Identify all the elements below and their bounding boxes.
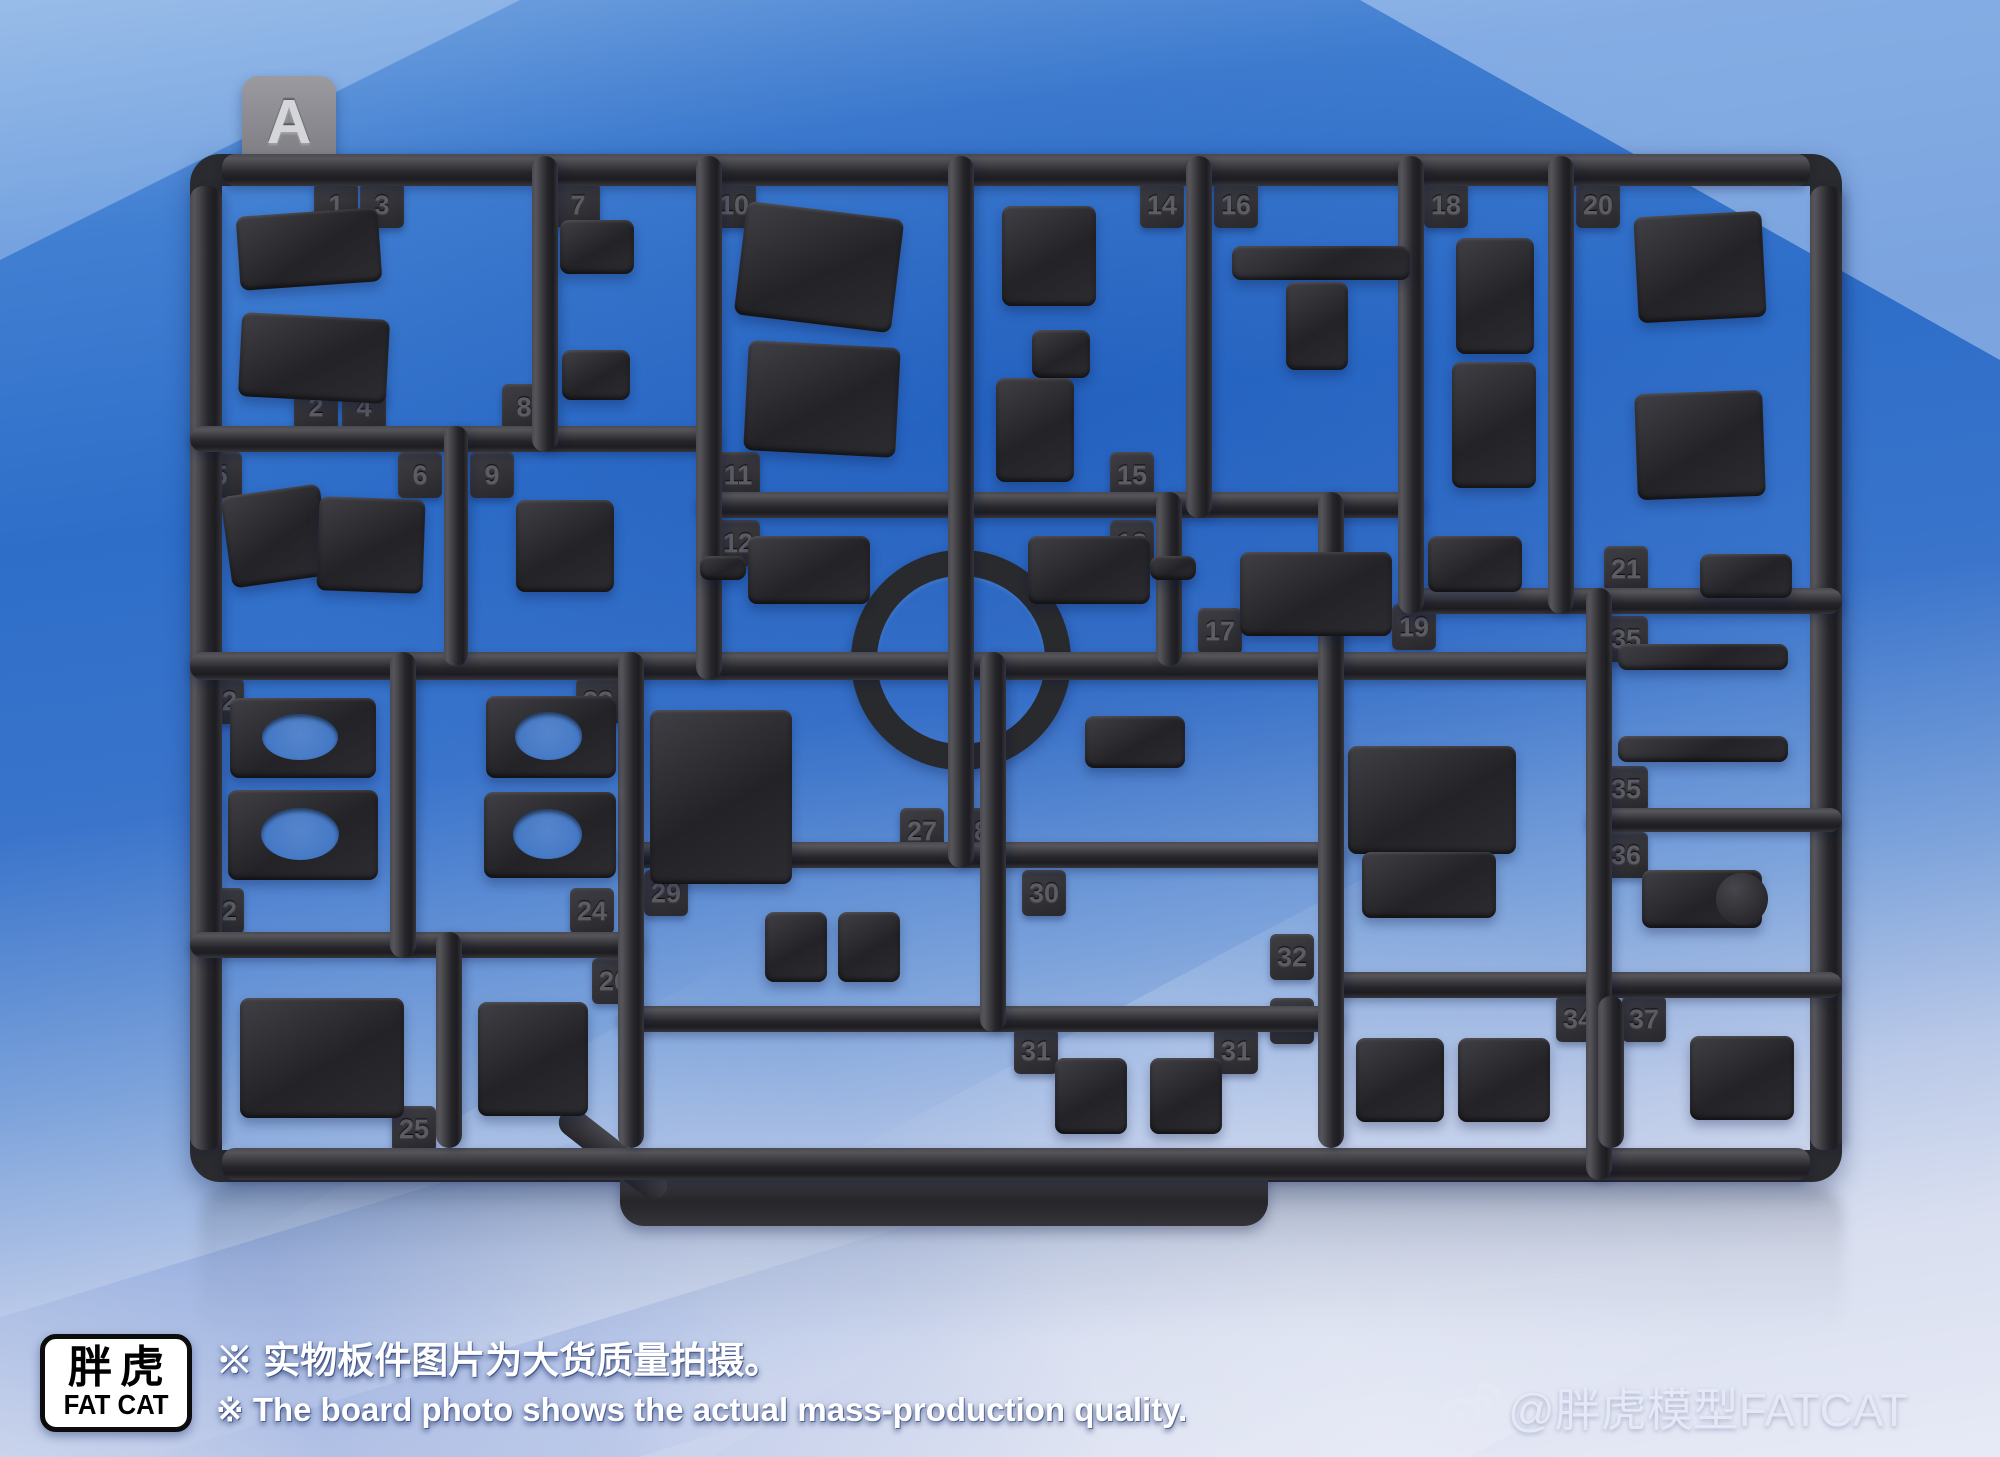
model-part bbox=[1700, 554, 1792, 598]
model-part bbox=[1028, 536, 1150, 604]
part-number-tab: 20 bbox=[1576, 182, 1620, 228]
model-part bbox=[1085, 716, 1185, 768]
runner-bar bbox=[1318, 972, 1842, 998]
part-hole bbox=[261, 808, 339, 860]
model-part bbox=[1633, 211, 1766, 324]
runner-bar bbox=[948, 156, 974, 868]
part-number-tab: 18 bbox=[1424, 182, 1468, 228]
model-part bbox=[1458, 1038, 1550, 1122]
runner-bar bbox=[980, 652, 1006, 1032]
model-part bbox=[478, 1002, 588, 1116]
model-part bbox=[734, 201, 905, 333]
runner-bar bbox=[390, 652, 416, 958]
model-part bbox=[1032, 330, 1090, 378]
note-chinese: ※ 实物板件图片为大货质量拍摄。 bbox=[216, 1336, 1187, 1386]
runner-bar bbox=[444, 426, 468, 666]
model-part bbox=[1348, 746, 1516, 854]
model-part bbox=[228, 790, 378, 880]
model-part bbox=[1456, 238, 1534, 354]
model-part bbox=[1356, 1038, 1444, 1122]
model-part bbox=[1452, 362, 1536, 488]
part-hole bbox=[515, 712, 583, 760]
part-hole bbox=[262, 714, 338, 760]
model-part bbox=[240, 998, 404, 1118]
part-number-tab: 6 bbox=[398, 452, 442, 498]
model-part bbox=[1150, 556, 1196, 580]
part-number-tab: 30 bbox=[1022, 870, 1066, 916]
runner-bar bbox=[436, 932, 462, 1148]
part-hole bbox=[513, 809, 582, 859]
footer-notes: ※ 实物板件图片为大货质量拍摄。 ※ The board photo shows… bbox=[216, 1334, 1187, 1434]
model-part bbox=[230, 698, 376, 778]
footer-branding: 胖虎 FAT CAT ※ 实物板件图片为大货质量拍摄。 ※ The board … bbox=[40, 1334, 1187, 1434]
model-part bbox=[220, 483, 332, 588]
model-part bbox=[1002, 206, 1096, 306]
model-part bbox=[1362, 852, 1496, 918]
part-number-tab: 32 bbox=[1270, 934, 1314, 980]
model-part bbox=[1618, 736, 1788, 762]
runner-bar bbox=[1398, 156, 1424, 614]
model-part bbox=[1634, 390, 1766, 500]
part-number-tab: 17 bbox=[1198, 608, 1242, 654]
runner-bar bbox=[1186, 156, 1212, 518]
model-part bbox=[1240, 552, 1392, 636]
model-part bbox=[1690, 1036, 1794, 1120]
model-part bbox=[236, 207, 383, 291]
runner-bar bbox=[190, 932, 644, 958]
model-part bbox=[838, 912, 900, 982]
model-part bbox=[650, 710, 792, 884]
model-part bbox=[516, 500, 614, 592]
model-part bbox=[238, 312, 390, 404]
runner-bar bbox=[1586, 808, 1842, 832]
note-english: ※ The board photo shows the actual mass-… bbox=[216, 1386, 1187, 1434]
part-number-tab: 24 bbox=[570, 888, 614, 934]
model-part bbox=[700, 556, 746, 580]
model-part bbox=[1286, 282, 1348, 370]
model-part bbox=[1232, 246, 1410, 280]
part-number-tab: 37 bbox=[1622, 996, 1666, 1042]
runner-bar bbox=[696, 492, 1424, 518]
model-part bbox=[1618, 644, 1788, 670]
watermark-text: @胖虎模型FATCAT bbox=[1508, 1374, 1908, 1440]
part-number-tab: 31 bbox=[1014, 1028, 1058, 1074]
weibo-icon bbox=[1438, 1378, 1500, 1437]
model-part bbox=[1428, 536, 1522, 592]
model-part bbox=[486, 696, 616, 778]
logo-english-text: FAT CAT bbox=[64, 1390, 169, 1421]
runner-bar bbox=[1548, 156, 1574, 614]
model-part bbox=[765, 912, 827, 982]
model-part bbox=[1150, 1058, 1222, 1134]
model-part bbox=[1642, 870, 1762, 928]
runner-bar bbox=[222, 1148, 1810, 1180]
model-part bbox=[316, 496, 425, 594]
model-part bbox=[748, 536, 870, 604]
product-photo-scene: A 13710141618202485691115121317192135353… bbox=[0, 0, 2000, 1457]
part-number-tab: 14 bbox=[1140, 182, 1184, 228]
ball-joint bbox=[1716, 873, 1768, 925]
runner-bar bbox=[696, 156, 722, 680]
watermark: @胖虎模型FATCAT bbox=[1438, 1374, 1908, 1440]
part-number-tab: 21 bbox=[1604, 546, 1648, 592]
runner-bar bbox=[532, 156, 558, 452]
model-part bbox=[562, 350, 630, 400]
model-part bbox=[1055, 1058, 1127, 1134]
part-number-tab: 16 bbox=[1214, 182, 1258, 228]
model-part bbox=[560, 220, 634, 274]
runner-bar bbox=[1598, 996, 1624, 1148]
part-number-tab: 9 bbox=[470, 452, 514, 498]
model-part bbox=[484, 792, 616, 878]
runner-bar bbox=[618, 652, 644, 1148]
model-part bbox=[743, 340, 901, 458]
model-part bbox=[996, 378, 1074, 482]
logo-chinese-text: 胖虎 bbox=[68, 1346, 172, 1390]
fatcat-logo: 胖虎 FAT CAT bbox=[40, 1334, 192, 1432]
runner-bar bbox=[1810, 186, 1842, 1150]
